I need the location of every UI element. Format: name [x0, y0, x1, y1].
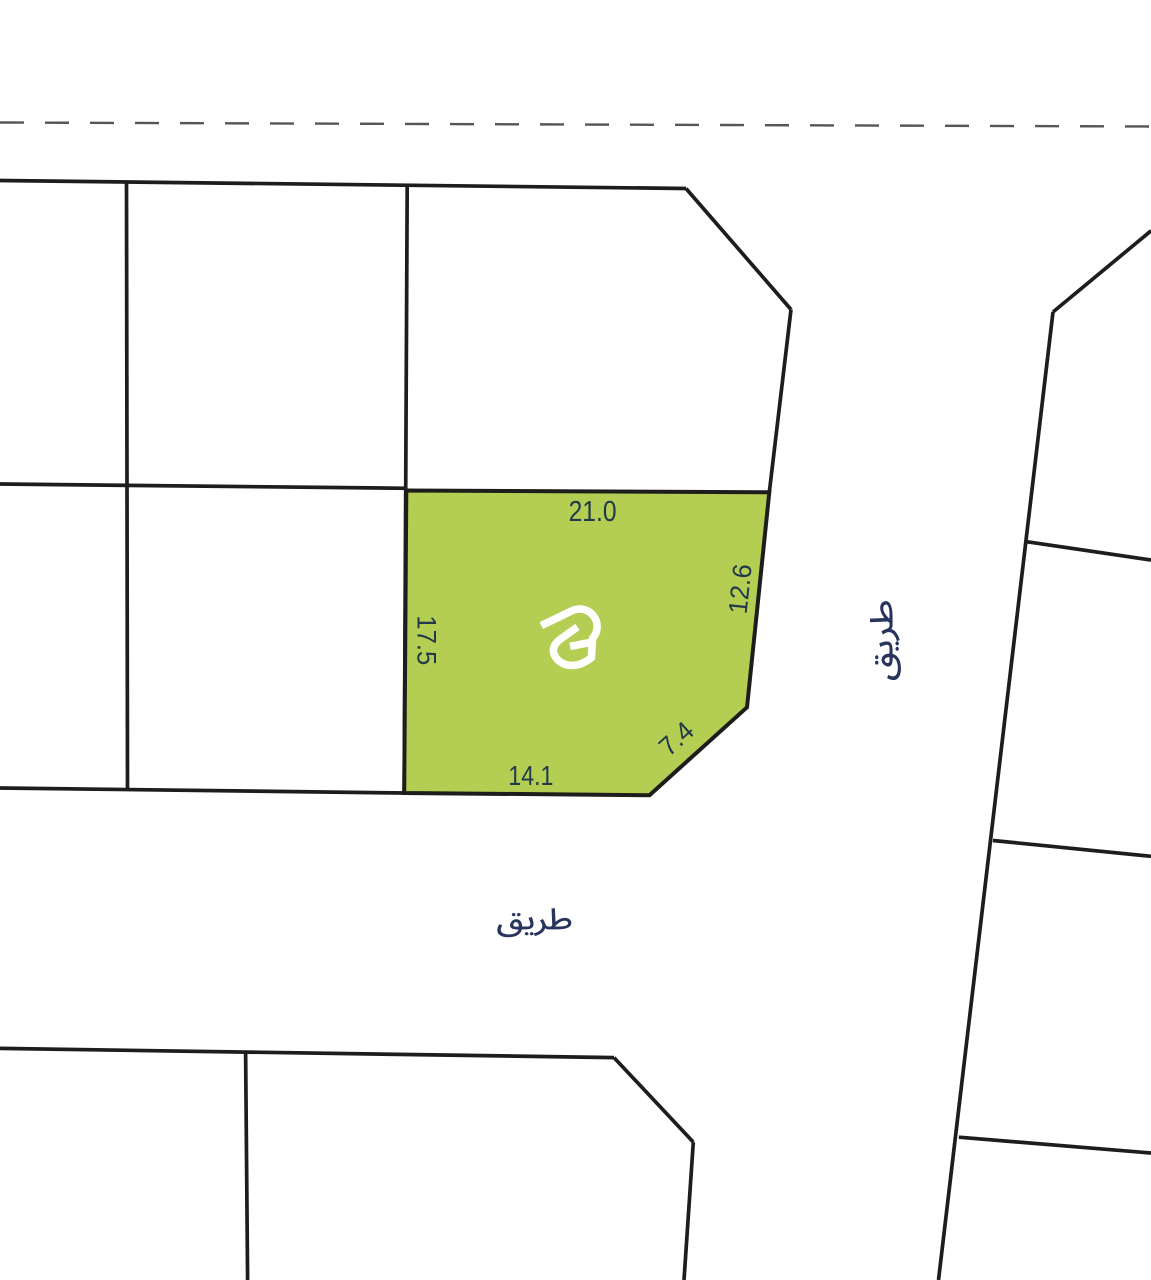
svg-text:14.1: 14.1	[508, 760, 553, 791]
svg-text:12.6: 12.6	[723, 562, 758, 615]
svg-text:17.5: 17.5	[411, 615, 441, 665]
svg-text:21.0: 21.0	[569, 496, 617, 528]
